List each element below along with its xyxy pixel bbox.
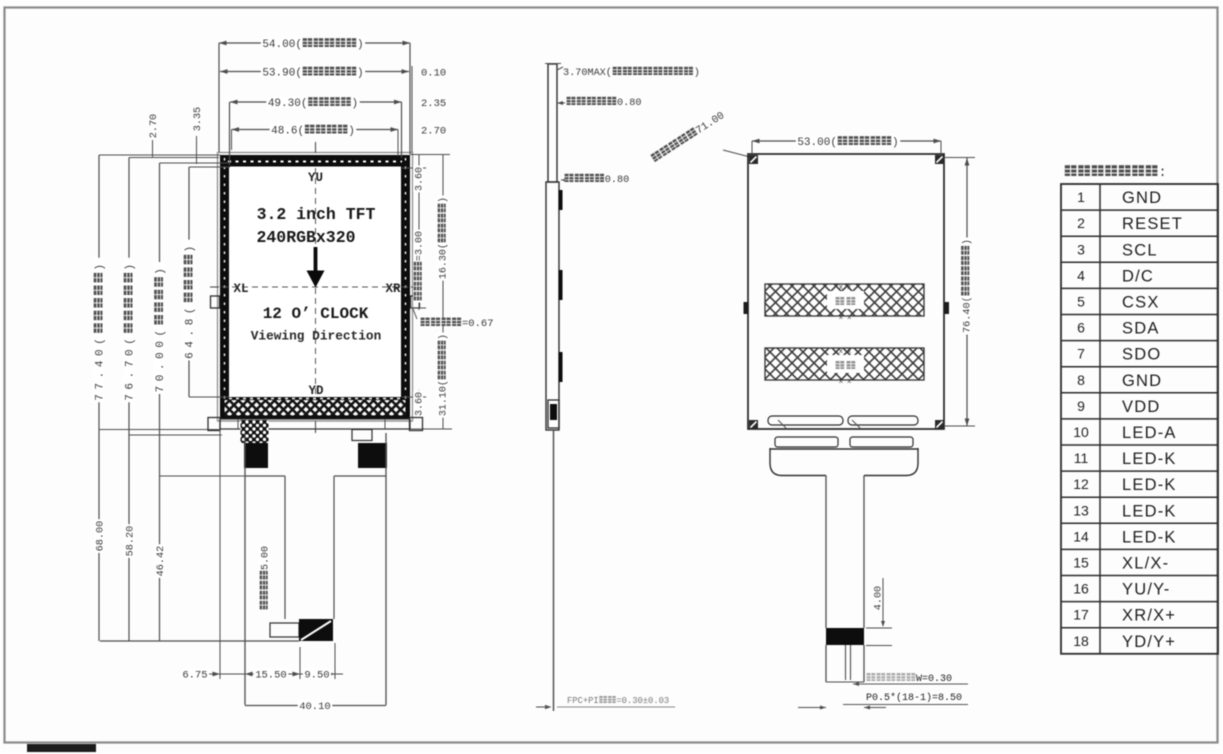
svg-text:3.60: 3.60 <box>415 392 426 416</box>
svg-text::: : <box>1159 166 1167 181</box>
svg-text:): ) <box>95 259 107 270</box>
svg-text:5.00: 5.00 <box>261 546 272 570</box>
svg-text:Viewing Direction: Viewing Direction <box>251 329 382 344</box>
svg-text:LED-K: LED-K <box>1122 502 1177 520</box>
svg-text:48.6(: 48.6( <box>271 126 304 138</box>
svg-text:7: 7 <box>1077 346 1085 362</box>
svg-text:LED-K: LED-K <box>1122 450 1177 468</box>
svg-text:): ) <box>352 98 359 110</box>
svg-text:12: 12 <box>1073 476 1089 492</box>
svg-text:53.00(: 53.00( <box>797 137 837 149</box>
svg-text:): ) <box>694 67 700 79</box>
svg-text:FPC+PI: FPC+PI <box>567 696 599 706</box>
svg-text:CSX: CSX <box>1122 293 1160 311</box>
svg-text:54.00(: 54.00( <box>262 39 302 51</box>
svg-text:D/C: D/C <box>1122 267 1154 285</box>
svg-text:2.70: 2.70 <box>421 126 446 138</box>
svg-text:76.40(: 76.40( <box>961 296 973 333</box>
svg-text:15: 15 <box>1073 554 1089 570</box>
svg-text:VDD: VDD <box>1122 398 1160 416</box>
svg-text:58.20: 58.20 <box>125 526 136 557</box>
svg-text:4.00: 4.00 <box>873 586 884 610</box>
svg-text:53.90(: 53.90( <box>262 68 302 80</box>
svg-text:15.50: 15.50 <box>255 670 287 682</box>
svg-text:9.50: 9.50 <box>304 670 329 682</box>
svg-text:0.80: 0.80 <box>617 98 641 109</box>
svg-text:2: 2 <box>1077 215 1085 231</box>
svg-text:GND: GND <box>1122 189 1162 207</box>
svg-text:): ) <box>125 259 137 270</box>
svg-text:3: 3 <box>1077 241 1085 257</box>
svg-text:SCL: SCL <box>1122 241 1158 259</box>
svg-text:2.35: 2.35 <box>421 98 446 110</box>
svg-text:6: 6 <box>1077 320 1085 336</box>
svg-text:): ) <box>892 137 899 149</box>
svg-text:): ) <box>438 334 450 340</box>
svg-text:x x: x x <box>839 348 852 356</box>
svg-text:8: 8 <box>1077 372 1085 388</box>
svg-text:x x: x x <box>839 378 852 386</box>
svg-text:P0.5*(18-1)=8.50: P0.5*(18-1)=8.50 <box>866 692 962 704</box>
svg-text:31.10(: 31.10( <box>438 380 450 416</box>
svg-text:12 O’ CLOCK: 12 O’ CLOCK <box>263 305 369 323</box>
svg-text:GND: GND <box>1122 372 1162 390</box>
svg-text:3.60: 3.60 <box>415 167 426 191</box>
svg-text:=0.67: =0.67 <box>462 318 494 330</box>
svg-text:68.00: 68.00 <box>95 521 106 552</box>
svg-text:SDA: SDA <box>1122 320 1160 338</box>
svg-text:10: 10 <box>1073 424 1089 440</box>
svg-text:76.70(: 76.70( <box>125 334 137 401</box>
svg-text:XR/X+: XR/X+ <box>1122 607 1176 625</box>
svg-text:0.80: 0.80 <box>605 175 629 186</box>
svg-text:LED-K: LED-K <box>1122 528 1177 546</box>
svg-text:4: 4 <box>1077 267 1085 283</box>
svg-text:RESET: RESET <box>1122 215 1183 233</box>
svg-text:W=0.30: W=0.30 <box>916 674 952 685</box>
svg-text:16.30(: 16.30( <box>438 243 450 279</box>
svg-text:5: 5 <box>1077 293 1085 309</box>
svg-text:): ) <box>185 241 197 252</box>
svg-text:14: 14 <box>1073 528 1089 544</box>
svg-text:XR: XR <box>385 282 401 296</box>
svg-text:3.70MAX(: 3.70MAX( <box>563 67 612 79</box>
svg-text:): ) <box>155 264 167 275</box>
svg-text:49.30(: 49.30( <box>268 98 308 110</box>
svg-text:0.10: 0.10 <box>421 68 446 80</box>
svg-text:YU: YU <box>308 171 323 185</box>
svg-text:x x: x x <box>839 314 852 322</box>
svg-text:2.70: 2.70 <box>149 114 160 138</box>
svg-text:XL/X-: XL/X- <box>1122 554 1169 572</box>
svg-text:): ) <box>348 126 355 138</box>
svg-text:70.00(: 70.00( <box>155 325 167 392</box>
svg-text:): ) <box>357 39 364 51</box>
svg-text:6.75: 6.75 <box>182 670 207 682</box>
svg-text:1: 1 <box>1077 189 1085 205</box>
svg-text:): ) <box>961 239 973 245</box>
svg-text:16: 16 <box>1073 581 1089 597</box>
svg-text:77.40(: 77.40( <box>95 334 107 401</box>
svg-text:3.2 inch TFT: 3.2 inch TFT <box>257 205 376 224</box>
svg-text:LED-K: LED-K <box>1122 476 1177 494</box>
svg-text:YD/Y+: YD/Y+ <box>1122 633 1176 651</box>
svg-text:=0.30±0.03: =0.30±0.03 <box>616 696 669 706</box>
svg-text:46.42: 46.42 <box>156 546 167 577</box>
svg-text:XL: XL <box>233 282 248 296</box>
svg-text:40.10: 40.10 <box>299 701 331 713</box>
svg-text:64.8(: 64.8( <box>185 303 197 359</box>
svg-text:SDO: SDO <box>1122 346 1161 364</box>
svg-text:18: 18 <box>1073 633 1089 649</box>
svg-text:17: 17 <box>1073 607 1089 623</box>
svg-text:): ) <box>438 197 450 203</box>
svg-text:YD: YD <box>308 384 324 398</box>
svg-text:YU/Y-: YU/Y- <box>1122 581 1171 599</box>
svg-text:13: 13 <box>1073 502 1089 518</box>
svg-text:9: 9 <box>1077 398 1085 414</box>
svg-text:11: 11 <box>1074 450 1089 466</box>
svg-text:=3.00: =3.00 <box>415 231 426 261</box>
svg-text:240RGBx320: 240RGBx320 <box>256 228 355 247</box>
svg-text:3.35: 3.35 <box>193 107 204 131</box>
svg-text:x x: x x <box>839 284 852 292</box>
svg-text:): ) <box>357 68 364 80</box>
svg-text:LED-A: LED-A <box>1122 424 1177 442</box>
